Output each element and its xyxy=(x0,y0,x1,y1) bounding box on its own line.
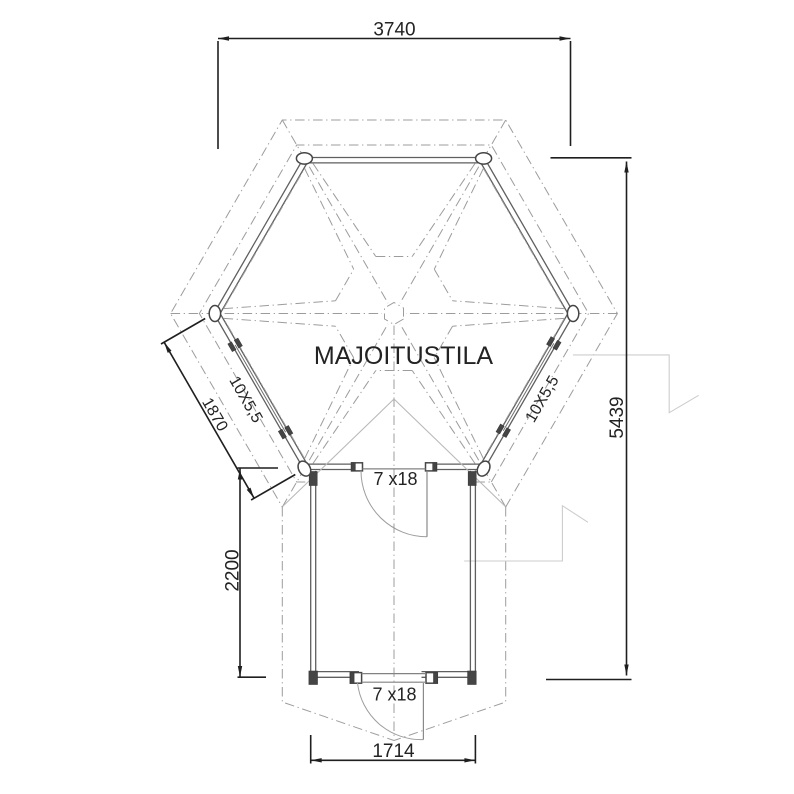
svg-text:3740: 3740 xyxy=(373,20,415,41)
svg-text:1714: 1714 xyxy=(372,741,415,762)
svg-text:2200: 2200 xyxy=(223,549,244,591)
svg-text:7 x18: 7 x18 xyxy=(372,685,416,705)
svg-text:1870: 1870 xyxy=(198,395,231,434)
svg-text:5439: 5439 xyxy=(607,396,628,438)
svg-text:7 x18: 7 x18 xyxy=(373,469,417,489)
svg-text:MAJOITUSTILA: MAJOITUSTILA xyxy=(314,342,494,370)
